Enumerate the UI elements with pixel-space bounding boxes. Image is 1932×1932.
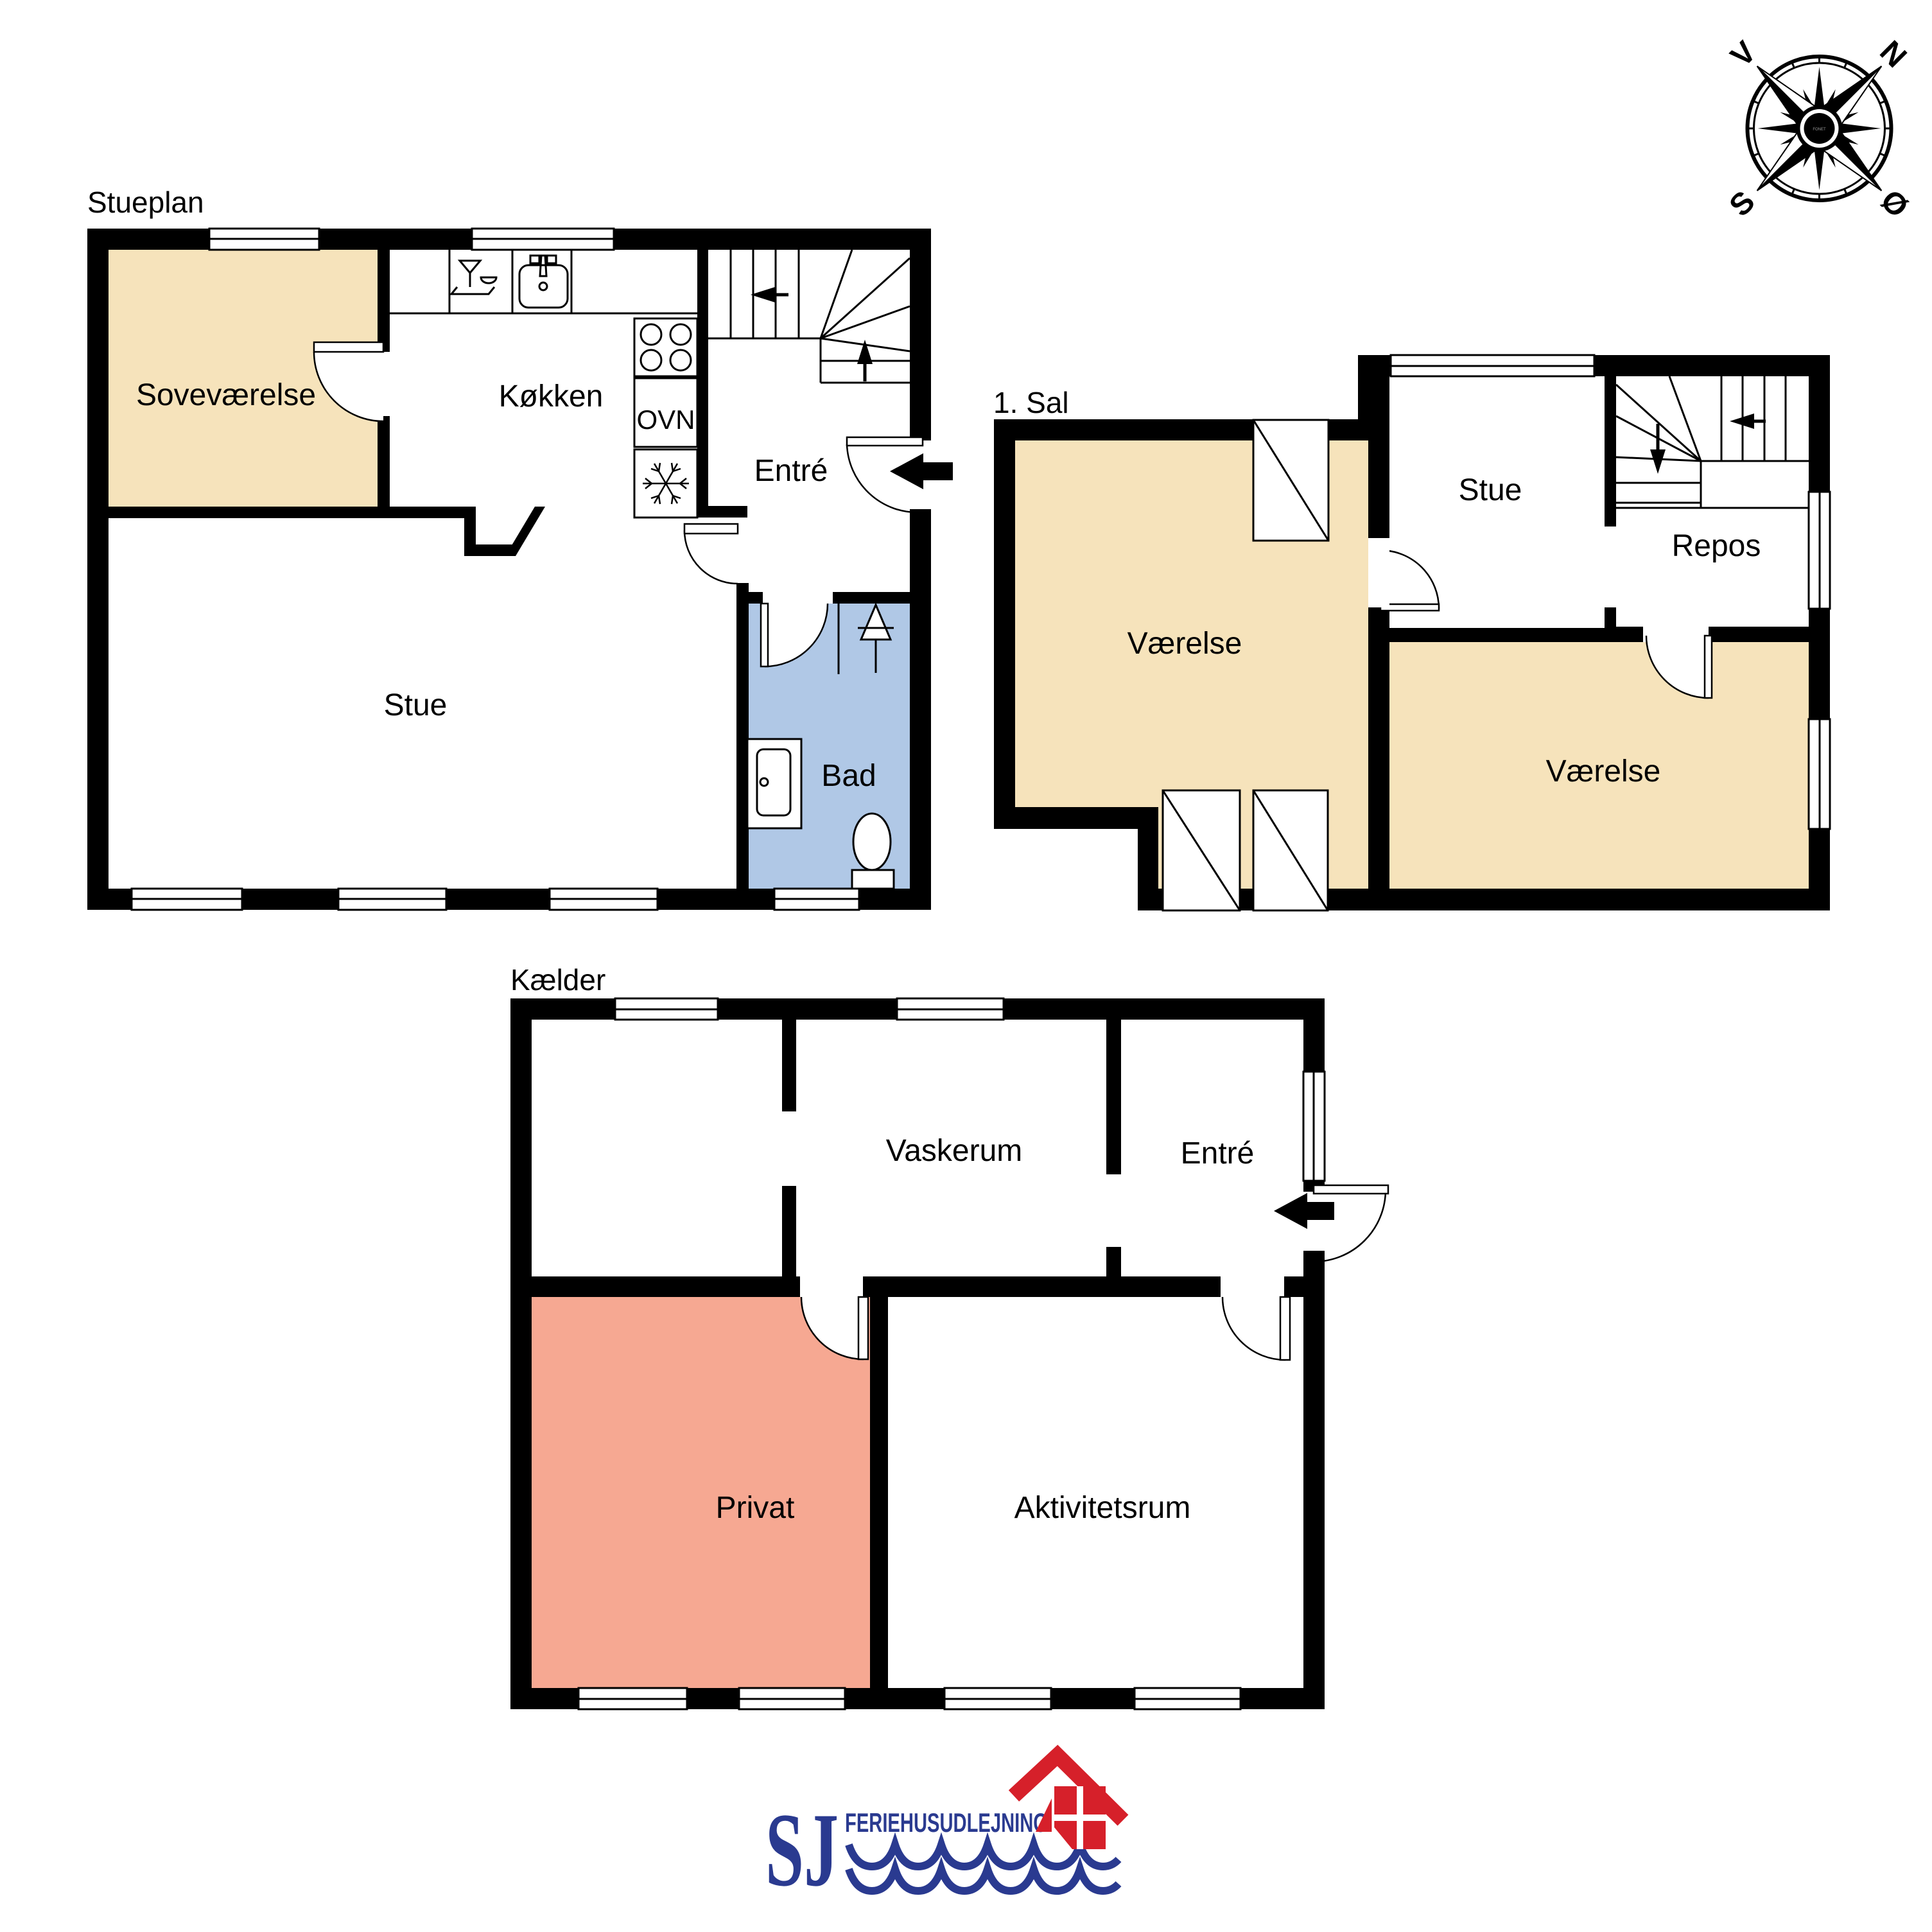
svg-text:Stue: Stue [1459, 473, 1522, 507]
svg-text:FERIEHUSUDLEJNING: FERIEHUSUDLEJNING [845, 1807, 1048, 1838]
svg-text:Stueplan: Stueplan [87, 186, 204, 219]
svg-text:Entré: Entré [754, 454, 828, 488]
svg-text:Bad: Bad [821, 759, 876, 793]
svg-text:Værelse: Værelse [1546, 754, 1661, 788]
svg-text:1. Sal: 1. Sal [993, 386, 1069, 419]
svg-text:SJ: SJ [765, 1792, 839, 1908]
svg-text:Repos: Repos [1672, 529, 1761, 563]
svg-text:Køkken: Køkken [499, 379, 604, 413]
svg-text:Soveværelse: Soveværelse [136, 378, 316, 412]
svg-text:OVN: OVN [636, 405, 695, 435]
svg-text:Entré: Entré [1181, 1136, 1255, 1171]
svg-text:Stue: Stue [384, 688, 448, 722]
svg-text:Privat: Privat [716, 1491, 795, 1525]
svg-text:Kælder: Kælder [510, 963, 605, 996]
svg-text:Aktivitetsrum: Aktivitetsrum [1014, 1491, 1191, 1525]
svg-text:Værelse: Værelse [1127, 627, 1242, 661]
svg-text:Vaskerum: Vaskerum [886, 1134, 1023, 1168]
svg-text:FONET: FONET [1813, 128, 1826, 132]
